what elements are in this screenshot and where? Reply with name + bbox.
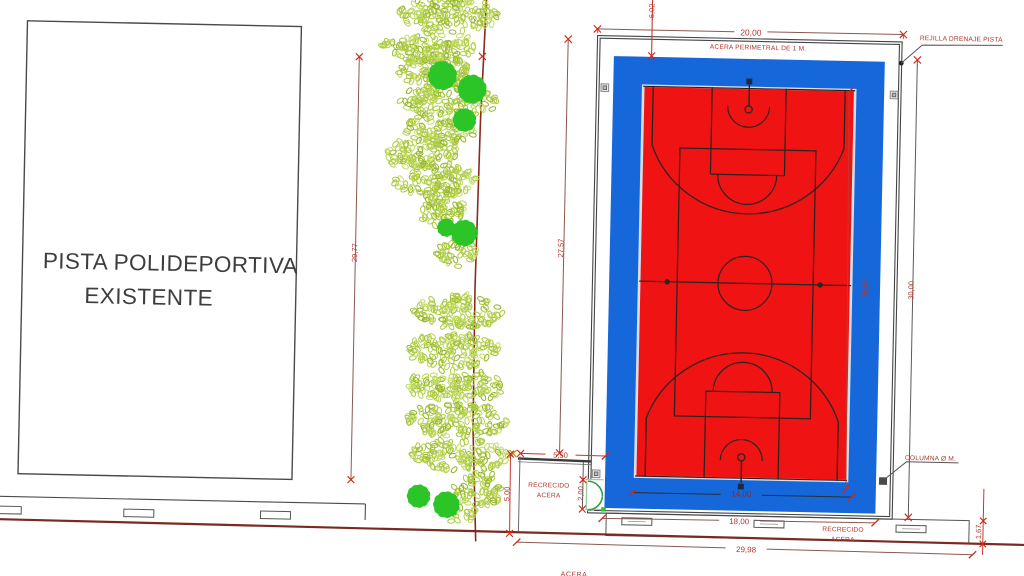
svg-text:29,77: 29,77 [350,243,359,262]
svg-text:COLUMNA Ø M.: COLUMNA Ø M. [905,455,956,463]
svg-text:6,02: 6,02 [647,3,656,18]
svg-text:PISTA POLIDEPORTIVA: PISTA POLIDEPORTIVA [43,248,299,278]
svg-text:2,00: 2,00 [576,486,585,501]
svg-text:5,00: 5,00 [502,487,511,502]
svg-text:29,98: 29,98 [736,545,757,554]
svg-text:ACERA: ACERA [831,536,855,544]
svg-text:RECRECIDO: RECRECIDO [528,482,570,490]
svg-text:ACERA: ACERA [537,492,561,500]
svg-text:EXISTENTE: EXISTENTE [84,283,213,311]
svg-text:14,00: 14,00 [731,489,752,498]
svg-text:18,00: 18,00 [729,517,750,526]
svg-text:27,57: 27,57 [556,239,565,258]
svg-text:RECRECIDO: RECRECIDO [822,526,864,534]
svg-text:ACERA: ACERA [561,571,588,576]
svg-text:26,00: 26,00 [860,279,869,298]
svg-text:1,67: 1,67 [974,524,983,539]
svg-text:30,00: 30,00 [906,281,915,300]
svg-text:20,00: 20,00 [740,27,762,37]
svg-text:5,50: 5,50 [553,451,568,460]
